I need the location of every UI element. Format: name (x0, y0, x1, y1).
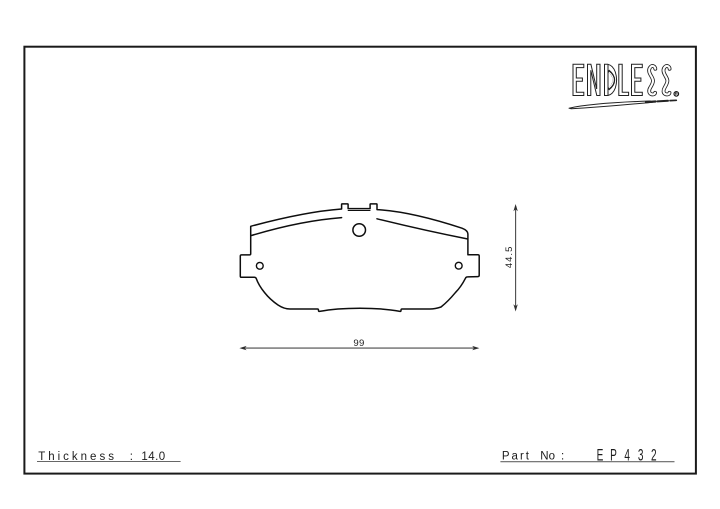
svg-text:44.5: 44.5 (503, 246, 514, 268)
svg-text:99: 99 (353, 338, 364, 349)
